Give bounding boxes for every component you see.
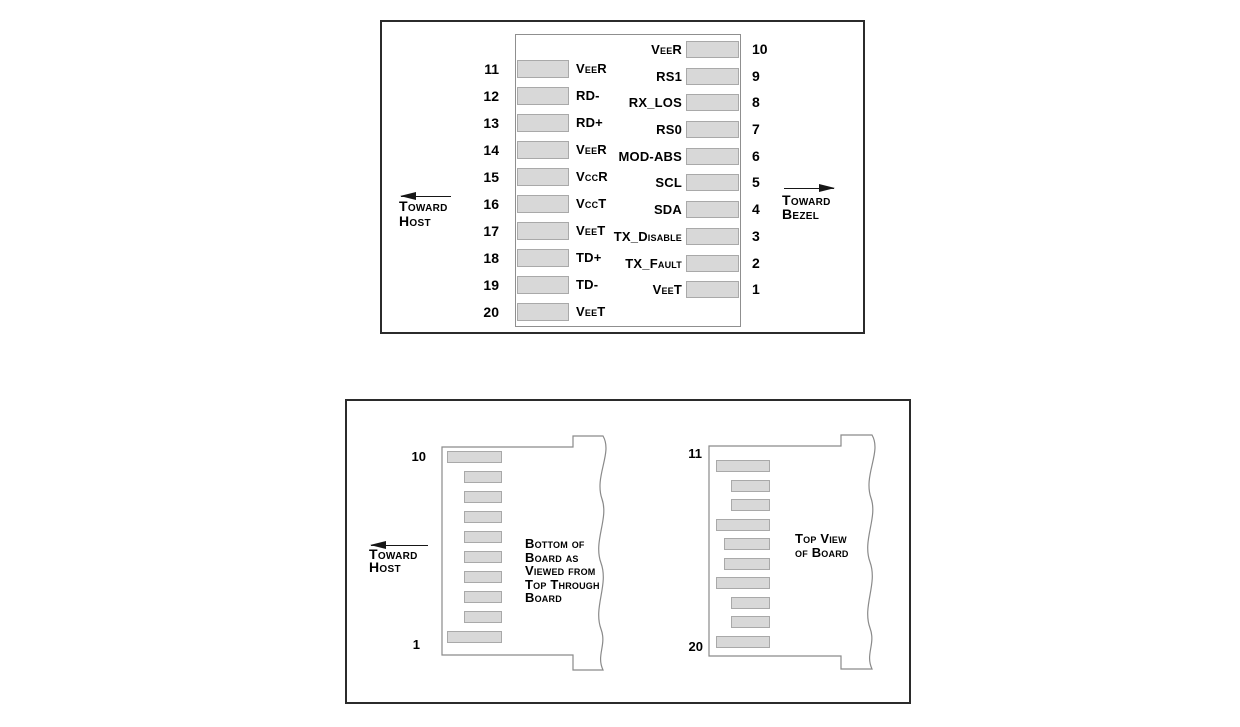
board-pin-number: 10: [386, 450, 426, 463]
board-pad: [724, 538, 770, 550]
toward-host-line2: Host: [399, 214, 448, 229]
pin-number: 7: [752, 121, 760, 138]
arrow-head: [819, 184, 835, 192]
pin-pad: [686, 94, 739, 111]
toward-host-line1: Toward: [399, 199, 448, 214]
pin-number: 14: [439, 141, 499, 159]
pin-label: SDA: [532, 201, 682, 218]
pin-number: 2: [752, 255, 760, 272]
board-views-figure: Toward Host 10 1 Bottom of Board as View…: [345, 399, 911, 704]
caption-line: Board: [525, 591, 625, 605]
pin-number: 17: [439, 222, 499, 240]
board-pad: [464, 491, 502, 503]
caption-line: Board as: [525, 551, 625, 565]
pin-label: TX_Fault: [532, 255, 682, 272]
toward-host-label: Toward Host: [369, 548, 418, 574]
caption-line: Viewed from: [525, 564, 625, 578]
pin-number: 8: [752, 94, 760, 111]
pin-pad: [686, 68, 739, 85]
pin-label: RS1: [532, 68, 682, 85]
pin-number: 11: [439, 60, 499, 78]
board-pad: [464, 511, 502, 523]
pin-label: VeeT: [532, 281, 682, 298]
pin-pad: [517, 303, 569, 321]
board-pad: [464, 571, 502, 583]
pin-label: RX_LOS: [532, 94, 682, 111]
pin-number: 18: [439, 249, 499, 267]
pin-number: 6: [752, 148, 760, 165]
caption-line: Top Through: [525, 578, 625, 592]
pin-label: VeeR: [532, 41, 682, 58]
top-view-caption: Top View of Board: [795, 532, 885, 559]
board-pad: [731, 616, 770, 628]
pin-pad: [686, 228, 739, 245]
board-pad: [716, 460, 770, 472]
pin-number: 13: [439, 114, 499, 132]
bottom-view-caption: Bottom of Board as Viewed from Top Throu…: [525, 537, 625, 605]
pin-label: MOD-ABS: [532, 148, 682, 165]
pin-label: VeeT: [576, 303, 605, 321]
pin-pad: [686, 201, 739, 218]
toward-bezel-line2: Bezel: [782, 207, 831, 221]
board-pad: [716, 636, 770, 648]
board-pin-number: 1: [380, 638, 420, 651]
toward-host-line2: Host: [369, 561, 418, 574]
board-pad: [447, 451, 502, 463]
board-pad: [724, 558, 770, 570]
board-pad: [464, 551, 502, 563]
board-pad: [464, 611, 502, 623]
pin-label: SCL: [532, 174, 682, 191]
caption-line: Bottom of: [525, 537, 625, 551]
toward-bezel-label: Toward Bezel: [782, 193, 831, 221]
pin-pad: [686, 281, 739, 298]
pin-pad: [686, 121, 739, 138]
pin-number: 3: [752, 228, 760, 245]
board-pad: [464, 471, 502, 483]
board-pad: [716, 519, 770, 531]
pin-number: 9: [752, 68, 760, 85]
board-pad: [731, 597, 770, 609]
board-pad: [464, 531, 502, 543]
pin-number: 15: [439, 168, 499, 186]
pin-pad: [686, 41, 739, 58]
caption-line: of Board: [795, 546, 885, 560]
pin-number: 5: [752, 174, 760, 191]
pin-number: 12: [439, 87, 499, 105]
board-pad: [731, 480, 770, 492]
toward-host-label: Toward Host: [399, 199, 448, 229]
pin-pad: [686, 174, 739, 191]
pin-number: 10: [752, 41, 768, 58]
pin-number: 20: [439, 303, 499, 321]
board-pad: [464, 591, 502, 603]
pin-number: 1: [752, 281, 760, 298]
board-pin-number: 20: [663, 640, 703, 653]
pinout-figure: 11 VeeR 12 RD- 13 RD+ 14 VeeR 15 VccR 16…: [380, 20, 865, 334]
board-pad: [447, 631, 502, 643]
toward-bezel-line1: Toward: [782, 193, 831, 207]
pin-label: RS0: [532, 121, 682, 138]
pin-number: 4: [752, 201, 760, 218]
caption-line: Top View: [795, 532, 885, 546]
pin-pad: [686, 255, 739, 272]
pin-number: 19: [439, 276, 499, 294]
board-pad: [716, 577, 770, 589]
pin-pad: [686, 148, 739, 165]
pin-label: TX_Disable: [532, 228, 682, 245]
board-pad: [731, 499, 770, 511]
board-pin-number: 11: [662, 447, 702, 460]
